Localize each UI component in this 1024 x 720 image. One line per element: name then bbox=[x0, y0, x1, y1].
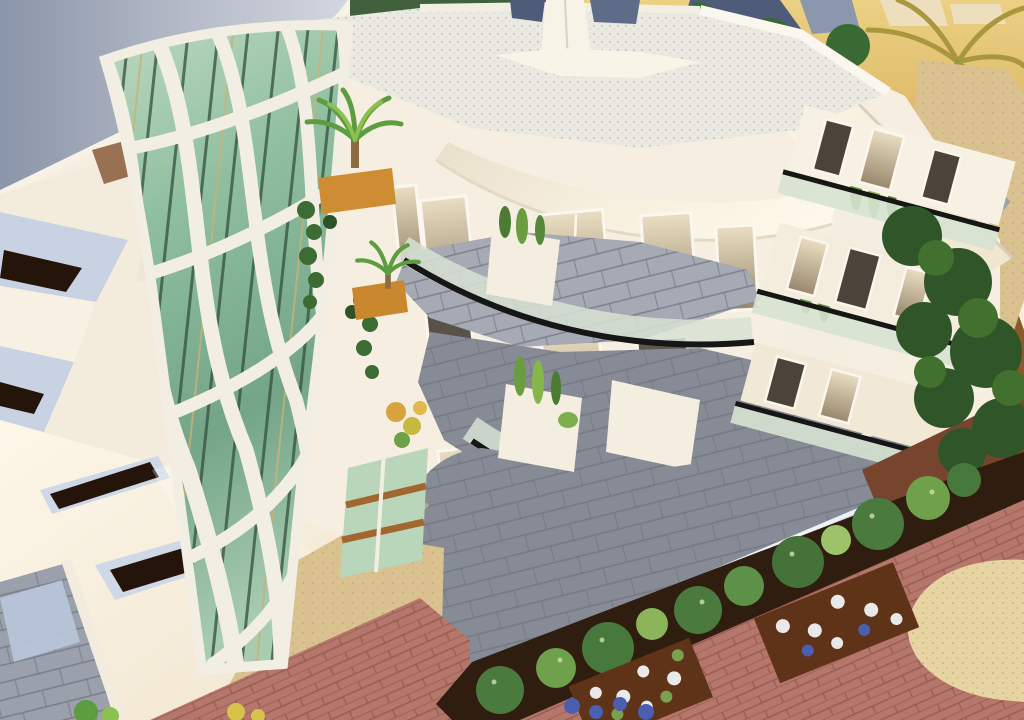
balustrade-rail bbox=[472, 441, 874, 547]
glass-mullions bbox=[60, 10, 370, 680]
balcony-slab bbox=[0, 212, 128, 302]
rail bbox=[783, 172, 999, 230]
background-palm bbox=[868, 0, 1024, 250]
right-balconies bbox=[717, 104, 1022, 478]
sand-pathway bbox=[214, 532, 444, 720]
glass-rail bbox=[777, 170, 1000, 251]
cypress bbox=[818, 282, 830, 322]
facade-doors-ground bbox=[438, 445, 650, 558]
cypress bbox=[887, 191, 897, 221]
palm-tree-small bbox=[357, 242, 419, 288]
slab-edge bbox=[66, 560, 120, 718]
window bbox=[716, 225, 758, 311]
flowering-plants bbox=[386, 401, 427, 448]
wood-planter bbox=[352, 280, 408, 320]
wood-strips bbox=[342, 486, 426, 540]
balcony-floor-3 bbox=[730, 342, 958, 479]
window bbox=[425, 304, 479, 402]
window bbox=[541, 330, 607, 433]
lattice-outline bbox=[105, 25, 348, 670]
right-walkway bbox=[891, 60, 1024, 430]
white-planters bbox=[352, 174, 908, 706]
bottom-left-wall bbox=[0, 420, 432, 720]
left-wing bbox=[0, 120, 260, 720]
parapet bbox=[420, 6, 700, 10]
balcony-slab bbox=[0, 346, 74, 432]
cypress bbox=[535, 215, 545, 245]
building-facade bbox=[230, 28, 1012, 545]
cypress bbox=[402, 620, 414, 660]
slit-frame bbox=[40, 456, 170, 514]
lattice-web bbox=[98, 16, 347, 668]
bush bbox=[674, 586, 722, 634]
facade-windows-mid bbox=[425, 304, 693, 432]
window bbox=[637, 336, 693, 431]
wall-panel bbox=[136, 218, 196, 292]
balcony-plants bbox=[297, 90, 428, 578]
light-rock bbox=[936, 322, 960, 338]
cypress bbox=[850, 174, 862, 210]
left-shrubs bbox=[74, 700, 119, 720]
bush bbox=[536, 648, 576, 688]
cypress bbox=[386, 556, 398, 596]
window bbox=[765, 357, 806, 409]
wood-deck bbox=[92, 126, 190, 184]
planter bbox=[780, 278, 856, 374]
facade-windows-upper bbox=[392, 185, 758, 317]
edge-trim bbox=[448, 460, 976, 684]
roof-vent bbox=[969, 173, 1010, 210]
bush bbox=[852, 498, 904, 550]
flowers-blue-patch bbox=[564, 697, 654, 720]
balcony-floor-1 bbox=[777, 104, 1017, 251]
white-divider bbox=[606, 380, 700, 470]
bush bbox=[947, 463, 981, 497]
light-rock bbox=[891, 291, 919, 309]
corner-tiles bbox=[0, 562, 114, 720]
cascading-vines bbox=[297, 201, 379, 379]
gravel-texture bbox=[270, 6, 888, 148]
bush bbox=[476, 666, 524, 714]
bush bbox=[821, 525, 851, 555]
flower-bed bbox=[568, 638, 713, 720]
glass-rail bbox=[730, 401, 942, 478]
window bbox=[541, 209, 612, 316]
garden-bed bbox=[436, 452, 1024, 720]
window bbox=[392, 185, 424, 267]
window-slit bbox=[0, 382, 44, 414]
window bbox=[819, 369, 860, 423]
flower-beds bbox=[227, 562, 919, 720]
distant-roof-gray bbox=[800, 0, 860, 34]
tile-joints bbox=[396, 232, 760, 347]
lattice-tower bbox=[60, 10, 370, 680]
glass-door bbox=[513, 459, 580, 557]
roofline-trees bbox=[350, 0, 560, 18]
golden-backdrop bbox=[540, 0, 1024, 430]
planter bbox=[498, 356, 582, 472]
right-garden bbox=[862, 206, 1024, 566]
terrace-lower bbox=[398, 432, 984, 700]
green-glass-curtain-wall bbox=[80, 10, 370, 680]
cypress bbox=[514, 356, 526, 396]
rail bbox=[757, 291, 971, 348]
flower-bed bbox=[754, 562, 919, 683]
sun-streak bbox=[212, 444, 420, 714]
bush bbox=[582, 622, 634, 674]
parapet bbox=[700, 10, 888, 92]
planter bbox=[828, 174, 908, 268]
cypress bbox=[405, 656, 419, 688]
cypress bbox=[551, 371, 561, 405]
bush bbox=[906, 476, 950, 520]
backdrop-trees bbox=[634, 2, 870, 98]
flowers-green bbox=[598, 648, 699, 720]
window bbox=[835, 248, 880, 310]
window bbox=[787, 237, 828, 296]
glass-balustrade bbox=[402, 248, 752, 332]
canopy-rim bbox=[0, 0, 352, 194]
rooftop-cap-right bbox=[590, 0, 640, 24]
edge-rail bbox=[458, 476, 984, 700]
cypress bbox=[516, 208, 528, 244]
window bbox=[420, 196, 476, 298]
tile-joints bbox=[418, 332, 866, 502]
balcony-floor-2 bbox=[752, 222, 991, 370]
lower-glass bbox=[0, 580, 80, 662]
window-slit bbox=[110, 522, 283, 592]
cypress bbox=[499, 206, 511, 238]
garden-bushes bbox=[476, 463, 981, 714]
rooftop-cap-left bbox=[510, 0, 545, 22]
window-slit bbox=[50, 462, 159, 509]
bush bbox=[724, 566, 764, 606]
wood-planter bbox=[318, 168, 396, 214]
cypress bbox=[394, 590, 406, 626]
bush-speckles bbox=[492, 490, 935, 685]
large-trees-light bbox=[914, 240, 1024, 406]
mullion bbox=[376, 452, 384, 572]
palm-tree bbox=[307, 90, 401, 168]
terrace-upper bbox=[396, 232, 760, 347]
window bbox=[859, 129, 904, 190]
slit-frame bbox=[95, 512, 300, 600]
distant-buildings bbox=[880, 0, 1006, 26]
window bbox=[894, 267, 932, 322]
planter bbox=[486, 206, 560, 306]
sun-streak bbox=[152, 458, 345, 720]
distant-roof-blue bbox=[678, 0, 822, 96]
glass-gold-reflections bbox=[75, 10, 325, 680]
architectural-rendering bbox=[0, 0, 1024, 720]
flowers-white bbox=[587, 653, 689, 720]
rail bbox=[735, 403, 942, 458]
slab-front bbox=[0, 286, 96, 362]
cypress bbox=[800, 278, 812, 314]
terrace-middle bbox=[418, 210, 930, 547]
mint-glass-panel bbox=[340, 448, 428, 578]
cypress bbox=[532, 360, 544, 404]
glass-door bbox=[438, 445, 501, 541]
shrub bbox=[558, 412, 578, 428]
edge-glass bbox=[452, 468, 980, 692]
window bbox=[641, 212, 698, 311]
large-trees bbox=[882, 206, 1024, 476]
window bbox=[921, 149, 961, 205]
roof-box bbox=[495, 48, 700, 78]
peach-wall bbox=[838, 210, 930, 282]
flowers-white bbox=[773, 575, 904, 668]
window-slit bbox=[0, 250, 82, 292]
curved-canopy-roof bbox=[0, 0, 352, 194]
cypress bbox=[868, 178, 880, 218]
glass-door bbox=[594, 466, 649, 558]
wall-groove bbox=[332, 504, 428, 586]
rooftop-column bbox=[540, 0, 592, 64]
roof-wing-right bbox=[788, 40, 1012, 308]
flowers-blue bbox=[800, 620, 872, 660]
cypress bbox=[372, 530, 384, 566]
curved-white-fascia bbox=[436, 142, 884, 240]
palm-trunk bbox=[351, 138, 359, 168]
bush bbox=[772, 536, 824, 588]
window bbox=[813, 119, 854, 176]
bush bbox=[636, 608, 668, 640]
planter-long bbox=[352, 530, 430, 706]
tile-joints bbox=[398, 432, 984, 692]
sand-inset bbox=[908, 560, 1024, 702]
flowers-yellow-patch bbox=[227, 703, 265, 720]
glass-rail bbox=[752, 289, 973, 370]
brick-paving bbox=[150, 496, 1024, 720]
glass-balustrade bbox=[470, 428, 872, 535]
background-base bbox=[0, 0, 1024, 720]
roof-terrace bbox=[270, 0, 888, 148]
balustrade-rail bbox=[404, 260, 754, 344]
